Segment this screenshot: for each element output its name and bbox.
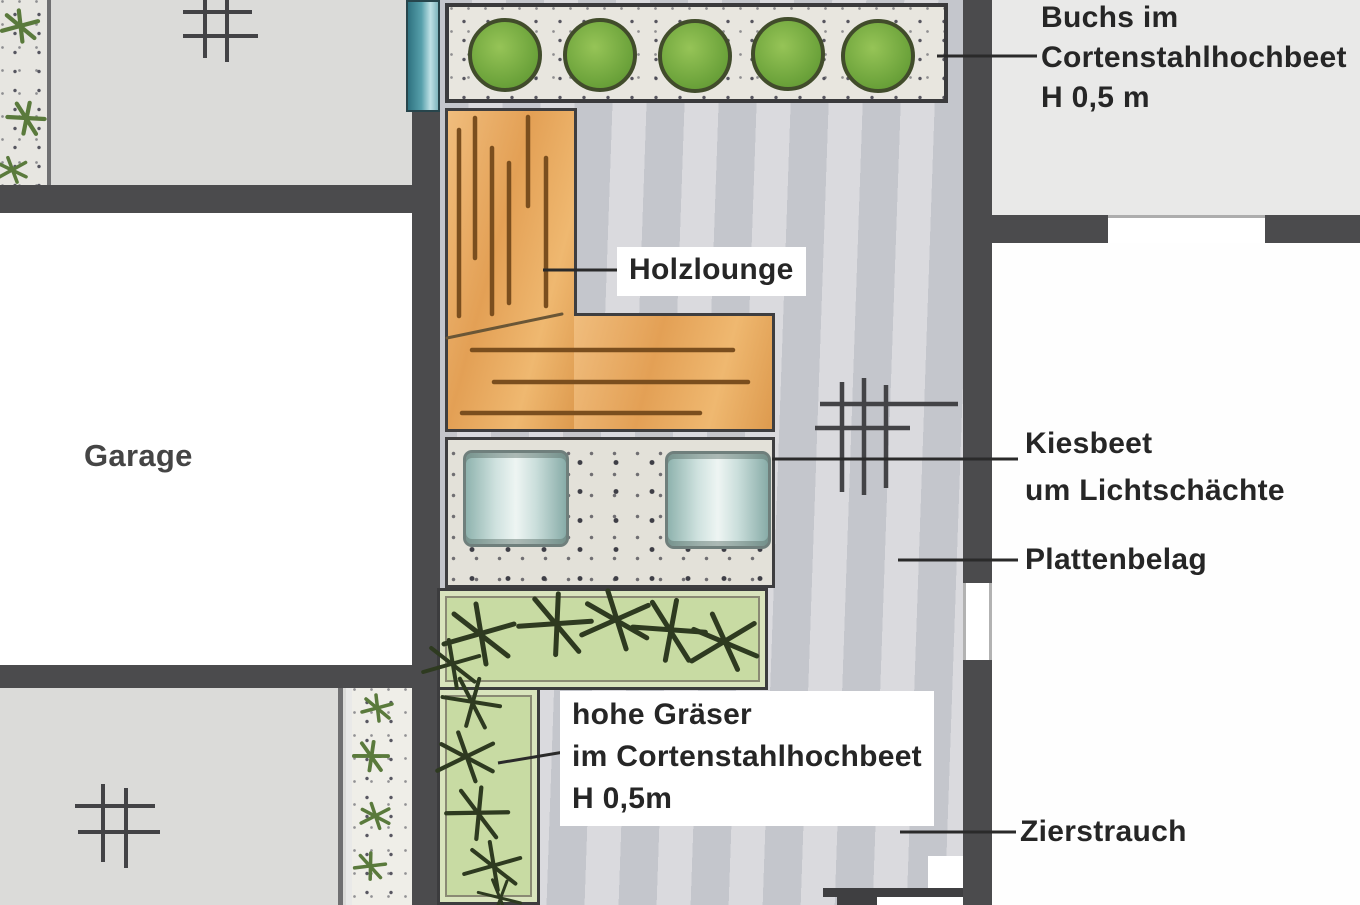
paving-top-left <box>51 0 412 185</box>
boxwood-planter <box>445 3 948 103</box>
label-line: H 0,5m <box>572 778 922 820</box>
label-buchs: Buchs im Cortenstahlhochbeet H 0,5 m <box>1041 0 1347 118</box>
label-zierstrauch: Zierstrauch <box>1020 812 1187 852</box>
planted-strip-bottom <box>352 688 412 905</box>
label-line: Cortenstahlhochbeet <box>1041 38 1347 78</box>
entrance-step <box>823 888 963 897</box>
light-shaft <box>665 451 771 549</box>
garage-area <box>0 213 412 665</box>
boxwood-ball <box>658 19 732 93</box>
wall-house-left <box>963 0 992 905</box>
planted-strip-top-left <box>0 0 51 185</box>
paving-bottom-left <box>0 688 346 905</box>
entrance-step-tread <box>877 897 963 905</box>
light-shaft <box>463 450 569 547</box>
boxwood-ball <box>563 18 637 92</box>
wall-garage-top <box>0 185 440 213</box>
label-line: Buchs im <box>1041 0 1347 38</box>
tall-grass-bed-left <box>437 690 540 905</box>
window-opening-left-wall <box>963 583 992 660</box>
label-line: Kiesbeet <box>1025 420 1285 467</box>
wall-garage-right <box>412 112 440 905</box>
boxwood-ball <box>841 19 915 93</box>
label-line: um Lichtschächte <box>1025 467 1285 514</box>
garden-plan: Buchs im Cortenstahlhochbeet H 0,5 m Hol… <box>0 0 1360 905</box>
label-line: im Cortenstahlhochbeet <box>572 736 922 778</box>
entrance-step-block <box>837 897 877 905</box>
tall-grass-bed-top <box>437 588 768 690</box>
water-feature-band <box>406 0 440 112</box>
label-holzlounge: Holzlounge <box>617 247 806 296</box>
label-line: hohe Gräser <box>572 694 922 736</box>
boxwood-ball <box>468 18 542 92</box>
label-garage: Garage <box>84 436 193 476</box>
wood-lounge-deck-vertical <box>445 108 577 432</box>
label-line: H 0,5 m <box>1041 78 1347 118</box>
wood-lounge-deck-horizontal <box>574 313 775 432</box>
window-opening-top-wall <box>1108 215 1265 243</box>
entrance-step-notch <box>928 856 963 890</box>
wall-garage-bottom <box>0 665 440 688</box>
bed-edge-line <box>338 688 343 905</box>
label-hohe-graeser: hohe Gräser im Cortenstahlhochbeet H 0,5… <box>560 691 934 826</box>
label-plattenbelag: Plattenbelag <box>1025 540 1207 580</box>
label-kiesbeet: Kiesbeet um Lichtschächte <box>1025 420 1285 514</box>
boxwood-ball <box>751 17 825 91</box>
